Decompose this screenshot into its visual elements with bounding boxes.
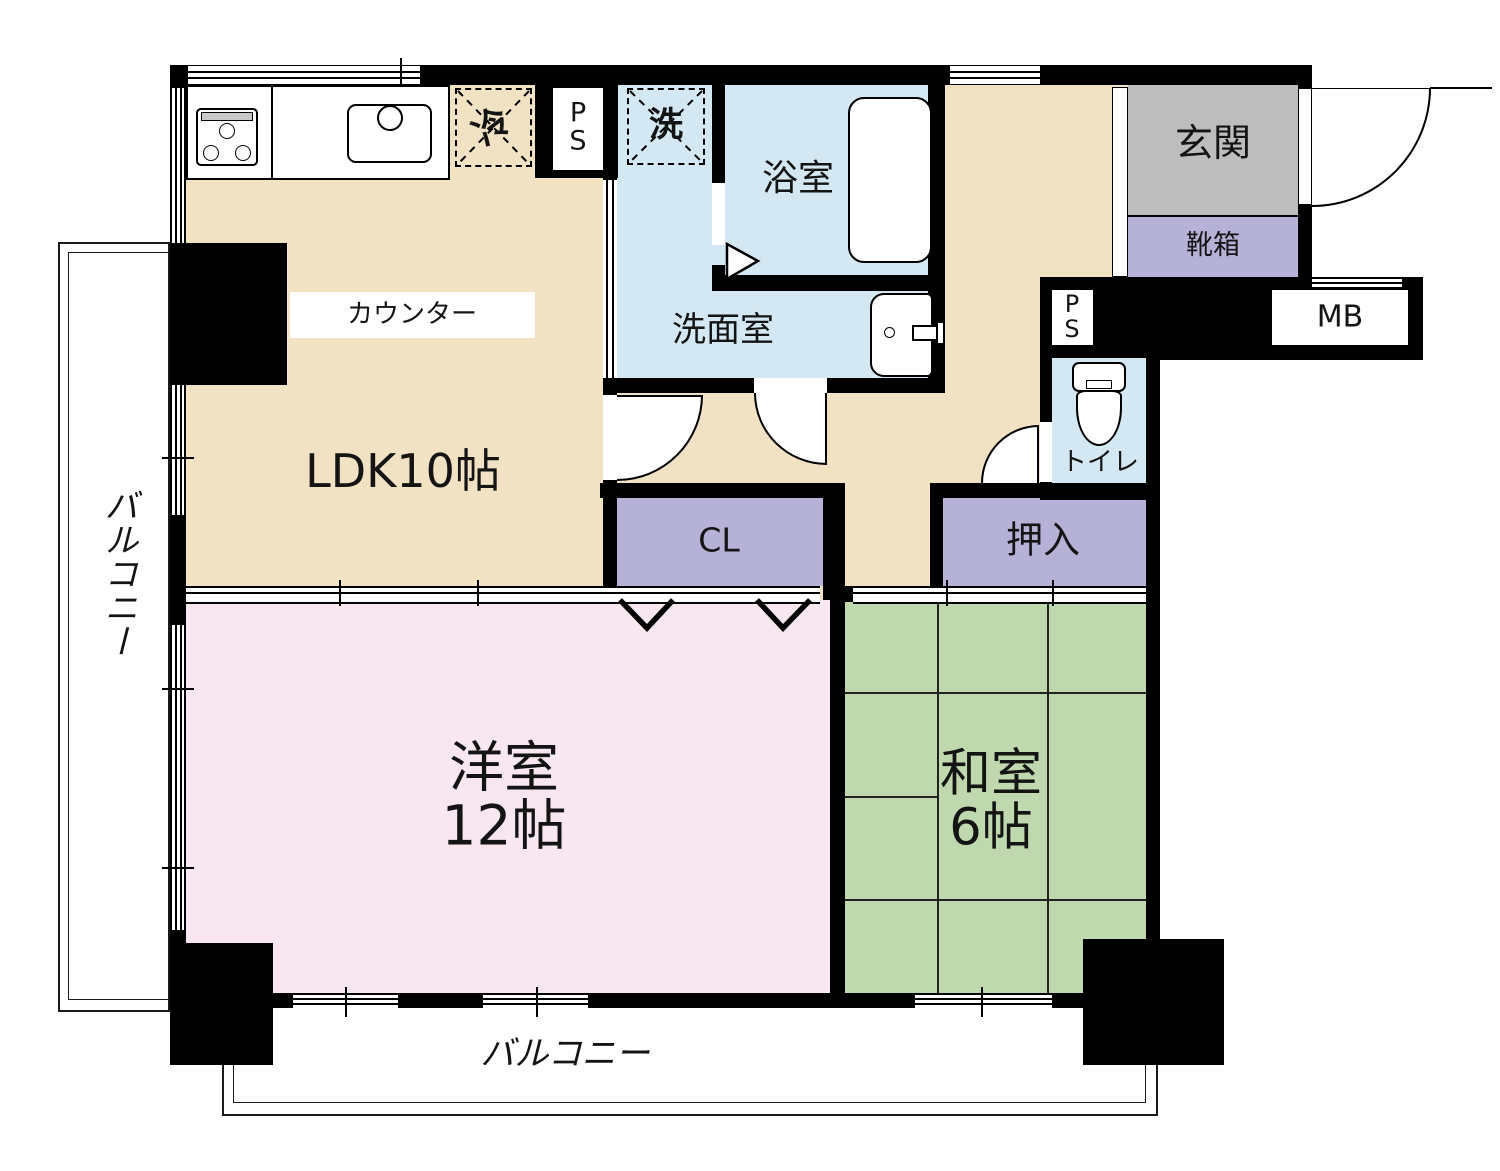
bath-label: 浴室: [758, 158, 838, 200]
entrance-step: [1112, 87, 1128, 277]
wall-oshiire-left: [930, 483, 943, 600]
sink-faucet: [377, 105, 403, 131]
ps-line1: P: [570, 98, 586, 129]
japanese-line2: 6帖: [949, 798, 1032, 857]
shoebox-label: 靴箱: [1186, 232, 1240, 260]
washer-label: 洗: [649, 108, 683, 144]
stove-burner: [203, 145, 219, 161]
vanity-drain: [884, 327, 895, 338]
oshiire-label: 押入: [1006, 522, 1080, 561]
window: [188, 66, 420, 84]
door-opening: [1040, 422, 1052, 482]
wall-ldk-hall: [603, 480, 617, 600]
stove-burner: [235, 145, 251, 161]
window: [172, 385, 184, 515]
balcony-bottom-inner-line: [233, 1008, 1146, 1103]
door-opening: [754, 378, 827, 393]
entrance-label: 玄関: [1175, 124, 1251, 164]
window: [172, 625, 184, 930]
tatami-line: [845, 692, 1146, 694]
pipe-space-label: P S: [1064, 292, 1079, 342]
wall-washroom-bottom: [603, 378, 754, 393]
bath-door-symbol: [725, 242, 761, 282]
entrance-door-arc: [1312, 88, 1431, 207]
tatami-line: [845, 899, 1146, 901]
pillar: [175, 243, 287, 385]
door-tick: [1052, 580, 1054, 606]
wall-bath-left: [712, 85, 725, 183]
window-tick: [981, 987, 983, 1017]
stove-grill: [201, 112, 253, 121]
wall-room-divider: [830, 600, 845, 995]
toilet-tank-lid: [1086, 380, 1112, 389]
door-tick: [477, 580, 479, 606]
western-room-label: 洋室 12帖: [442, 739, 567, 855]
neighbor-wall-line: [1430, 87, 1492, 89]
bath-door-opening: [712, 183, 725, 245]
stove-burner: [219, 123, 235, 139]
door-tick: [339, 580, 341, 606]
toilet-label: トイレ: [1061, 449, 1139, 476]
door-tick: [946, 580, 948, 606]
ps-line2: S: [569, 126, 586, 157]
door-opening: [603, 395, 617, 480]
western-line1: 洋室: [449, 735, 559, 799]
tatami-line: [1047, 600, 1049, 995]
wall-closet-right: [823, 483, 845, 600]
vanity-faucet-knob: [936, 321, 945, 345]
window: [950, 66, 1040, 84]
wall-toilet-left: [1040, 358, 1052, 422]
ps-line1: P: [1065, 290, 1079, 318]
window: [915, 995, 1052, 1008]
wall-shoebox-bottom: [1112, 277, 1148, 290]
counter-label: カウンター: [347, 301, 477, 328]
closet-label: CL: [698, 524, 739, 559]
western-line2: 12帖: [442, 793, 567, 857]
window-tick: [162, 867, 194, 869]
wall-closet-top: [600, 483, 845, 498]
window-tick: [162, 688, 194, 690]
entrance-door-opening: [1298, 88, 1312, 205]
window-tick: [162, 457, 194, 459]
balcony-left-label: バルコニー: [99, 488, 135, 658]
fusuma-track: [853, 586, 1146, 604]
balcony-bottom-label: バルコニー: [480, 1037, 649, 1073]
wall-oshiire-top: [930, 483, 1148, 498]
vent-window: [1312, 274, 1402, 287]
window-tick: [536, 987, 538, 1017]
bathtub-icon: [848, 97, 932, 263]
partition-window: [603, 180, 617, 388]
pillar: [1083, 939, 1224, 1065]
pipe-space-label: P S: [569, 100, 586, 157]
window-tick: [345, 987, 347, 1017]
washroom-label: 洗面室: [672, 313, 774, 349]
pillar: [170, 943, 273, 1065]
floor-plan: 冷 洗 P S P S MB カウンター LDK10帖 浴室 洗面室 トイレ 玄…: [0, 0, 1500, 1171]
ps-line2: S: [1064, 315, 1079, 343]
japanese-room-label: 和室 6帖: [940, 747, 1042, 854]
tatami-line: [845, 796, 939, 798]
ldk-label: LDK10帖: [305, 447, 501, 495]
japanese-line1: 和室: [940, 744, 1042, 803]
window: [172, 88, 184, 243]
meter-box-label: MB: [1317, 301, 1363, 333]
wall-right: [1146, 355, 1160, 1008]
folding-door-symbol: [600, 598, 830, 638]
